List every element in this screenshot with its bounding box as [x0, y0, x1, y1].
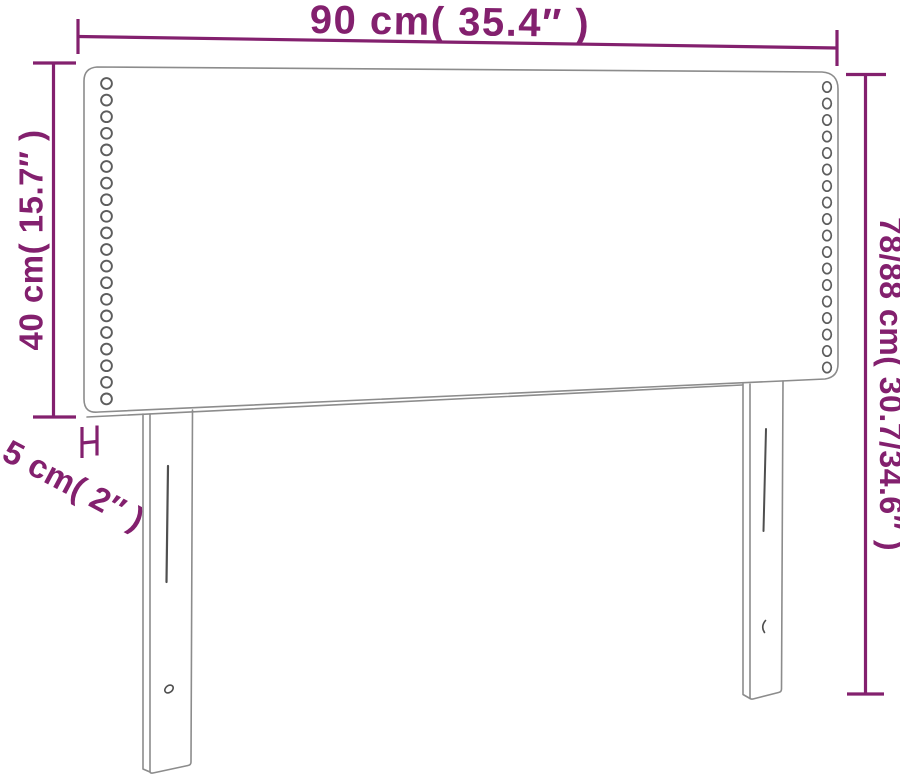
depth-line [82, 442, 97, 444]
stud-circle [101, 244, 112, 255]
stud-circle [823, 263, 832, 273]
stud-circle [823, 181, 832, 191]
left-leg-side-face [143, 414, 150, 772]
stud-circle [101, 128, 112, 139]
stud-circle [823, 148, 832, 158]
height-right-dimension-label: 78/88 cm( 30.7/34.6″ ) [873, 217, 900, 551]
stud-circle [823, 197, 832, 207]
stud-circle [101, 178, 112, 189]
stud-circle [101, 261, 112, 272]
stud-circle [101, 311, 112, 322]
stud-circle [101, 277, 112, 288]
stud-circle [823, 98, 832, 108]
stud-circle [823, 247, 832, 257]
stud-circle [101, 194, 112, 205]
left-leg-front-face [150, 410, 193, 773]
stud-circle [823, 214, 832, 224]
stud-circle [823, 82, 832, 92]
width-dimension-label: 90 cm( 35.4″ ) [310, 0, 591, 46]
stud-circle [823, 164, 832, 174]
right-leg [743, 381, 783, 699]
stud-circle [823, 362, 832, 372]
stud-circle [101, 111, 112, 122]
stud-circle [101, 161, 112, 172]
left-leg-hole [163, 683, 174, 694]
headboard-outline [84, 67, 838, 412]
stud-circle [101, 145, 112, 156]
furniture-art [84, 67, 838, 773]
stud-circle [101, 294, 112, 305]
stud-circle [823, 296, 832, 306]
leg-details [163, 429, 766, 695]
stud-circle [823, 346, 832, 356]
stud-circle [823, 115, 832, 125]
stud-circle [101, 211, 112, 222]
stud-circle [101, 394, 112, 405]
depth-dimension [82, 426, 97, 459]
stud-circle [823, 230, 832, 240]
left-leg-slot [167, 466, 169, 582]
stud-circle [823, 329, 832, 339]
stud-circle [823, 313, 832, 323]
stud-circle [823, 131, 832, 141]
stud-circle [101, 228, 112, 239]
stud-circle [101, 344, 112, 355]
left-leg [143, 410, 193, 773]
right-leg-slot [764, 429, 767, 531]
stud-circle [823, 280, 832, 290]
stud-circle [101, 78, 112, 89]
right-leg-side-face [743, 384, 750, 699]
stud-circle [101, 377, 112, 388]
headboard-dimension-diagram: 90 cm( 35.4″ ) 40 cm( 15.7″ ) 78/88 cm( … [0, 0, 900, 776]
right-leg-hole [763, 621, 766, 633]
depth-dimension-label: 5 cm( 2″ ) [0, 432, 151, 537]
stud-circle [101, 95, 112, 106]
stud-circle [101, 327, 112, 338]
height-left-dimension-label: 40 cm( 15.7″ ) [13, 130, 50, 351]
stud-circle [101, 360, 112, 371]
